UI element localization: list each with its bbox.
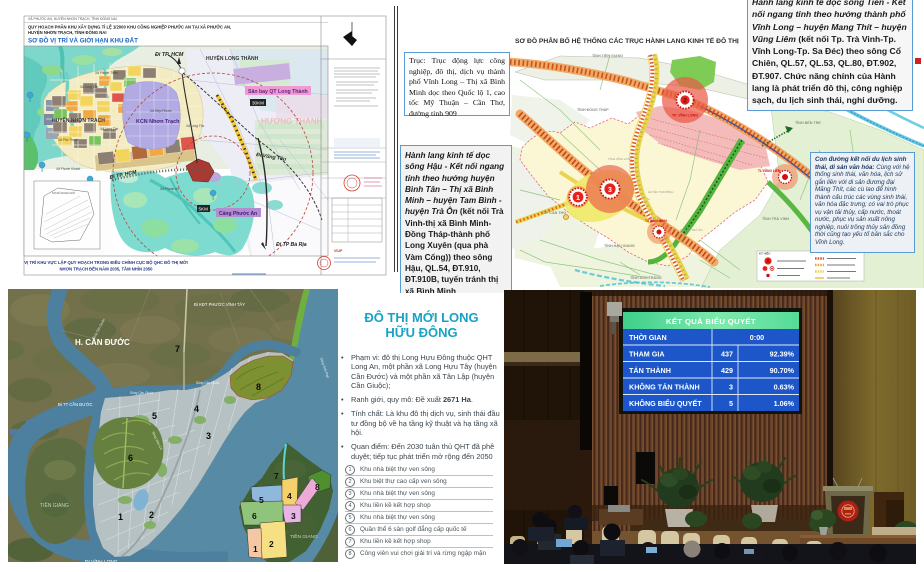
svg-text:KÝ HIỆU: KÝ HIỆU: [759, 251, 770, 256]
svg-text:8: 8: [256, 382, 261, 392]
svg-text:4: 4: [194, 404, 199, 414]
svg-text:TỈNH TRÀ VINH: TỈNH TRÀ VINH: [762, 216, 789, 221]
svg-text:TỈNH VĨNH LONG: TỈNH VĨNH LONG: [608, 156, 633, 161]
svg-text:TIỀN GIANG: TIỀN GIANG: [40, 502, 69, 509]
svg-text:Đi KĐT PHƯỚC VĨNH TÂY: Đi KĐT PHƯỚC VĨNH TÂY: [194, 302, 245, 307]
svg-text:2: 2: [683, 98, 687, 105]
svg-text:TỈNH TIỀN GIANG: TỈNH TIỀN GIANG: [592, 53, 623, 58]
svg-text:1.06%: 1.06%: [774, 399, 795, 408]
svg-text:Xã Phước An: Xã Phước An: [159, 187, 179, 191]
svg-text:KHÔNG BIỂU QUYẾT: KHÔNG BIỂU QUYẾT: [629, 398, 702, 408]
svg-text:Xã Phú Thạnh: Xã Phú Thạnh: [57, 138, 79, 142]
svg-text:Xã Phước Khánh: Xã Phước Khánh: [55, 167, 81, 171]
svg-text:437: 437: [721, 350, 733, 359]
svg-text:5KM: 5KM: [199, 207, 209, 212]
svg-text:TỈNH HẬU GIANG: TỈNH HẬU GIANG: [604, 243, 635, 248]
svg-text:8: 8: [315, 482, 320, 492]
svg-text:Sân bay QT Long Thành: Sân bay QT Long Thành: [248, 89, 308, 95]
svg-text:30KM: 30KM: [252, 101, 264, 106]
svg-text:Cảng Phước An: Cảng Phước An: [219, 211, 257, 217]
svg-text:THAM GIA: THAM GIA: [629, 350, 665, 359]
svg-text:HUYỆN LONG THÀNH: HUYỆN LONG THÀNH: [206, 54, 259, 62]
svg-text:6: 6: [252, 511, 257, 521]
svg-text:Xã Hiệp Phước: Xã Hiệp Phước: [149, 109, 172, 113]
svg-text:SƠ ĐỒ VỊ TRÍ VÀ GIỚI HẠN KHU Đ: SƠ ĐỒ VỊ TRÍ VÀ GIỚI HẠN KHU ĐẤT: [28, 37, 138, 45]
svg-text:1: 1: [253, 544, 258, 554]
svg-text:KCN Nhơn Trạch: KCN Nhơn Trạch: [136, 119, 179, 125]
svg-text:0:00: 0:00: [750, 333, 764, 342]
svg-text:1: 1: [576, 195, 580, 202]
svg-text:Xã Long Thọ: Xã Long Thọ: [185, 124, 204, 128]
svg-text:XÃ PHƯỚC AN, HUYỆN NHƠN TRẠCH,: XÃ PHƯỚC AN, HUYỆN NHƠN TRẠCH, TỈNH ĐỒNG…: [28, 16, 117, 21]
svg-text:2: 2: [149, 510, 154, 520]
svg-text:Đi TT CẦN ĐƯỚC: Đi TT CẦN ĐƯỚC: [58, 402, 92, 407]
svg-text:KHÔNG TÁN THÀNH: KHÔNG TÁN THÀNH: [629, 383, 700, 392]
svg-text:7: 7: [274, 471, 279, 481]
svg-text:6: 6: [128, 453, 133, 463]
svg-text:TIỀN GIANG: TIỀN GIANG: [290, 533, 318, 540]
svg-text:ĐI VĨNH LONG: ĐI VĨNH LONG: [85, 558, 118, 565]
svg-text:3: 3: [608, 187, 612, 194]
svg-text:3: 3: [291, 511, 296, 521]
svg-text:TX BÌNH MINH: TX BÌNH MINH: [645, 218, 667, 223]
svg-text:TL VŨNG LIÊM: TL VŨNG LIÊM: [758, 168, 781, 173]
svg-text:92.39%: 92.39%: [770, 350, 795, 359]
svg-text:7: 7: [175, 344, 180, 354]
svg-text:Đi TP Bà Rịa: Đi TP Bà Rịa: [276, 242, 307, 248]
svg-text:HUYỆN TRÀ ÔN: HUYỆN TRÀ ÔN: [680, 227, 703, 232]
svg-text:Sông Cần Giuộc: Sông Cần Giuộc: [130, 391, 154, 395]
svg-text:HUYỆN TAM BÌNH: HUYỆN TAM BÌNH: [648, 189, 673, 194]
svg-text:90.70%: 90.70%: [770, 366, 795, 375]
svg-text:KẾT QUẢ BIỂU QUYẾT: KẾT QUẢ BIỂU QUYẾT: [666, 316, 756, 326]
svg-text:TỈNH BẾN TRE: TỈNH BẾN TRE: [795, 120, 821, 125]
svg-text:QUY HOẠCH PHÂN KHU XÂY DỰNG TỈ: QUY HOẠCH PHÂN KHU XÂY DỰNG TỈ LỆ 1/2000…: [28, 25, 231, 30]
svg-text:VỊ TRÍ KHU VỰC LẬP QUY HOẠCH T: VỊ TRÍ KHU VỰC LẬP QUY HOẠCH TRONG ĐIỀU …: [24, 260, 187, 265]
svg-text:TP. CẦN THƠ: TP. CẦN THƠ: [543, 211, 567, 215]
svg-text:TÁN THÀNH: TÁN THÀNH: [629, 366, 671, 375]
svg-text:TỈNH ĐỒNG THÁP: TỈNH ĐỒNG THÁP: [577, 107, 609, 112]
svg-text:HUYỆN NHƠN TRẠCH: HUYỆN NHƠN TRẠCH: [52, 116, 105, 124]
svg-text:VIUP: VIUP: [334, 249, 343, 253]
svg-text:NHƠN TRẠCH ĐẾN NĂM 2035, TẦM N: NHƠN TRẠCH ĐẾN NĂM 2035, TẦM NHÌN 2050: [60, 267, 154, 272]
svg-text:3: 3: [729, 383, 733, 392]
svg-text:TP. VĨNH LONG: TP. VĨNH LONG: [672, 113, 698, 118]
svg-text:Xã Long Tân: Xã Long Tân: [99, 127, 118, 131]
svg-text:Sông Cần Giuộc: Sông Cần Giuộc: [196, 381, 220, 385]
svg-text:1: 1: [118, 512, 123, 522]
svg-text:HƯƠNG THÀNH: HƯƠNG THÀNH: [261, 117, 323, 126]
svg-text:Xã Phước Thiện: Xã Phước Thiện: [94, 71, 118, 75]
svg-text:5: 5: [152, 411, 157, 421]
svg-text:4: 4: [287, 491, 292, 501]
svg-text:5: 5: [729, 399, 733, 408]
svg-text:HUYỆN NHƠN TRẠCH, TỈNH ĐỒNG NA: HUYỆN NHƠN TRẠCH, TỈNH ĐỒNG NAI: [28, 30, 106, 35]
svg-text:Xã Long Tân: Xã Long Tân: [79, 85, 98, 89]
svg-text:2: 2: [269, 539, 274, 549]
svg-text:5: 5: [259, 495, 264, 505]
svg-text:3: 3: [206, 431, 211, 441]
svg-text:H. CẦN ĐƯỚC: H. CẦN ĐƯỚC: [75, 337, 130, 347]
svg-text:THỜI GIAN: THỜI GIAN: [629, 333, 667, 342]
svg-text:Đi TP. HCM: Đi TP. HCM: [155, 52, 184, 58]
svg-text:429: 429: [721, 366, 733, 375]
svg-text:0.63%: 0.63%: [774, 383, 795, 392]
